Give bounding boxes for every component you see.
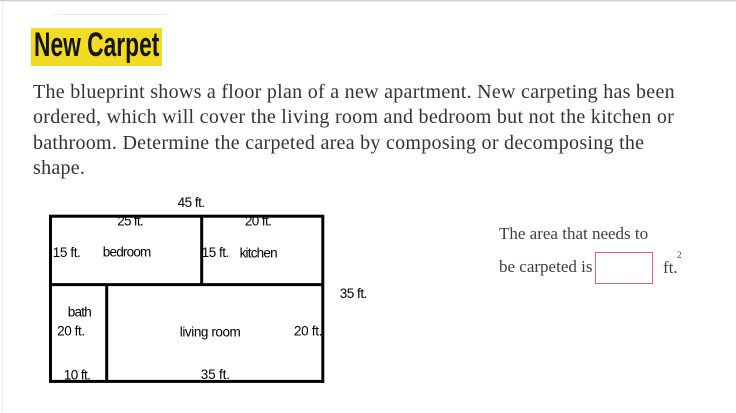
svg-text:20 ft.: 20 ft.: [245, 214, 272, 229]
svg-text:20 ft.: 20 ft.: [294, 324, 323, 339]
svg-text:35 ft.: 35 ft.: [201, 367, 230, 382]
svg-text:kitchen: kitchen: [240, 246, 278, 261]
svg-text:25 ft.: 25 ft.: [117, 214, 144, 229]
svg-text:45 ft.: 45 ft.: [178, 195, 206, 210]
svg-text:20 ft.: 20 ft.: [57, 324, 85, 339]
svg-text:15 ft.: 15 ft.: [53, 245, 81, 260]
svg-text:bath: bath: [68, 304, 92, 319]
svg-text:35 ft.: 35 ft.: [340, 286, 368, 301]
svg-text:living room: living room: [180, 324, 241, 339]
svg-text:bedroom: bedroom: [103, 244, 152, 259]
svg-text:15 ft.: 15 ft.: [202, 245, 230, 260]
svg-text:10 ft.: 10 ft.: [64, 368, 91, 383]
